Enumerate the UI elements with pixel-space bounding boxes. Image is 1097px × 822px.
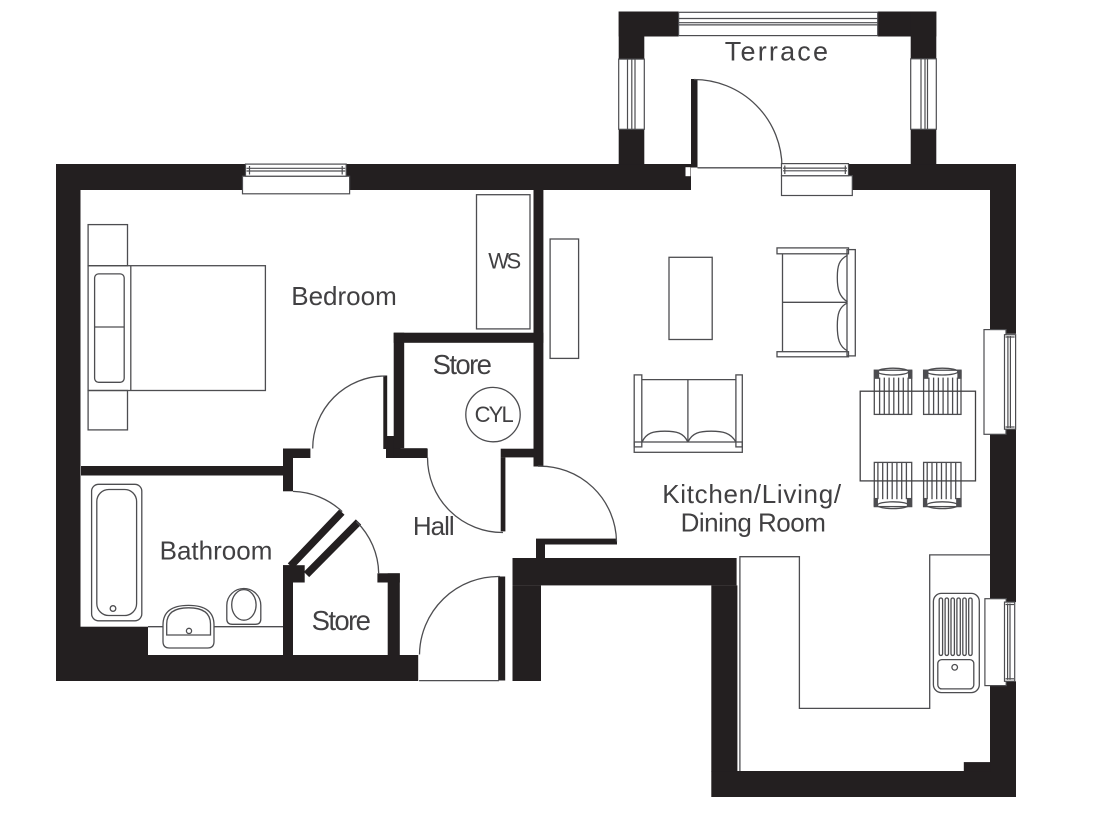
svg-text:CYL: CYL <box>475 402 514 427</box>
svg-text:Store: Store <box>433 349 492 380</box>
svg-text:Store: Store <box>312 605 371 636</box>
svg-text:Terrace: Terrace <box>725 37 830 67</box>
svg-text:Bedroom: Bedroom <box>291 281 397 311</box>
svg-text:Hall: Hall <box>413 511 454 541</box>
svg-text:Bathroom: Bathroom <box>160 536 273 566</box>
svg-text:Dining Room: Dining Room <box>681 508 826 538</box>
svg-text:WS: WS <box>488 249 520 274</box>
svg-text:Kitchen/Living/: Kitchen/Living/ <box>662 479 842 509</box>
